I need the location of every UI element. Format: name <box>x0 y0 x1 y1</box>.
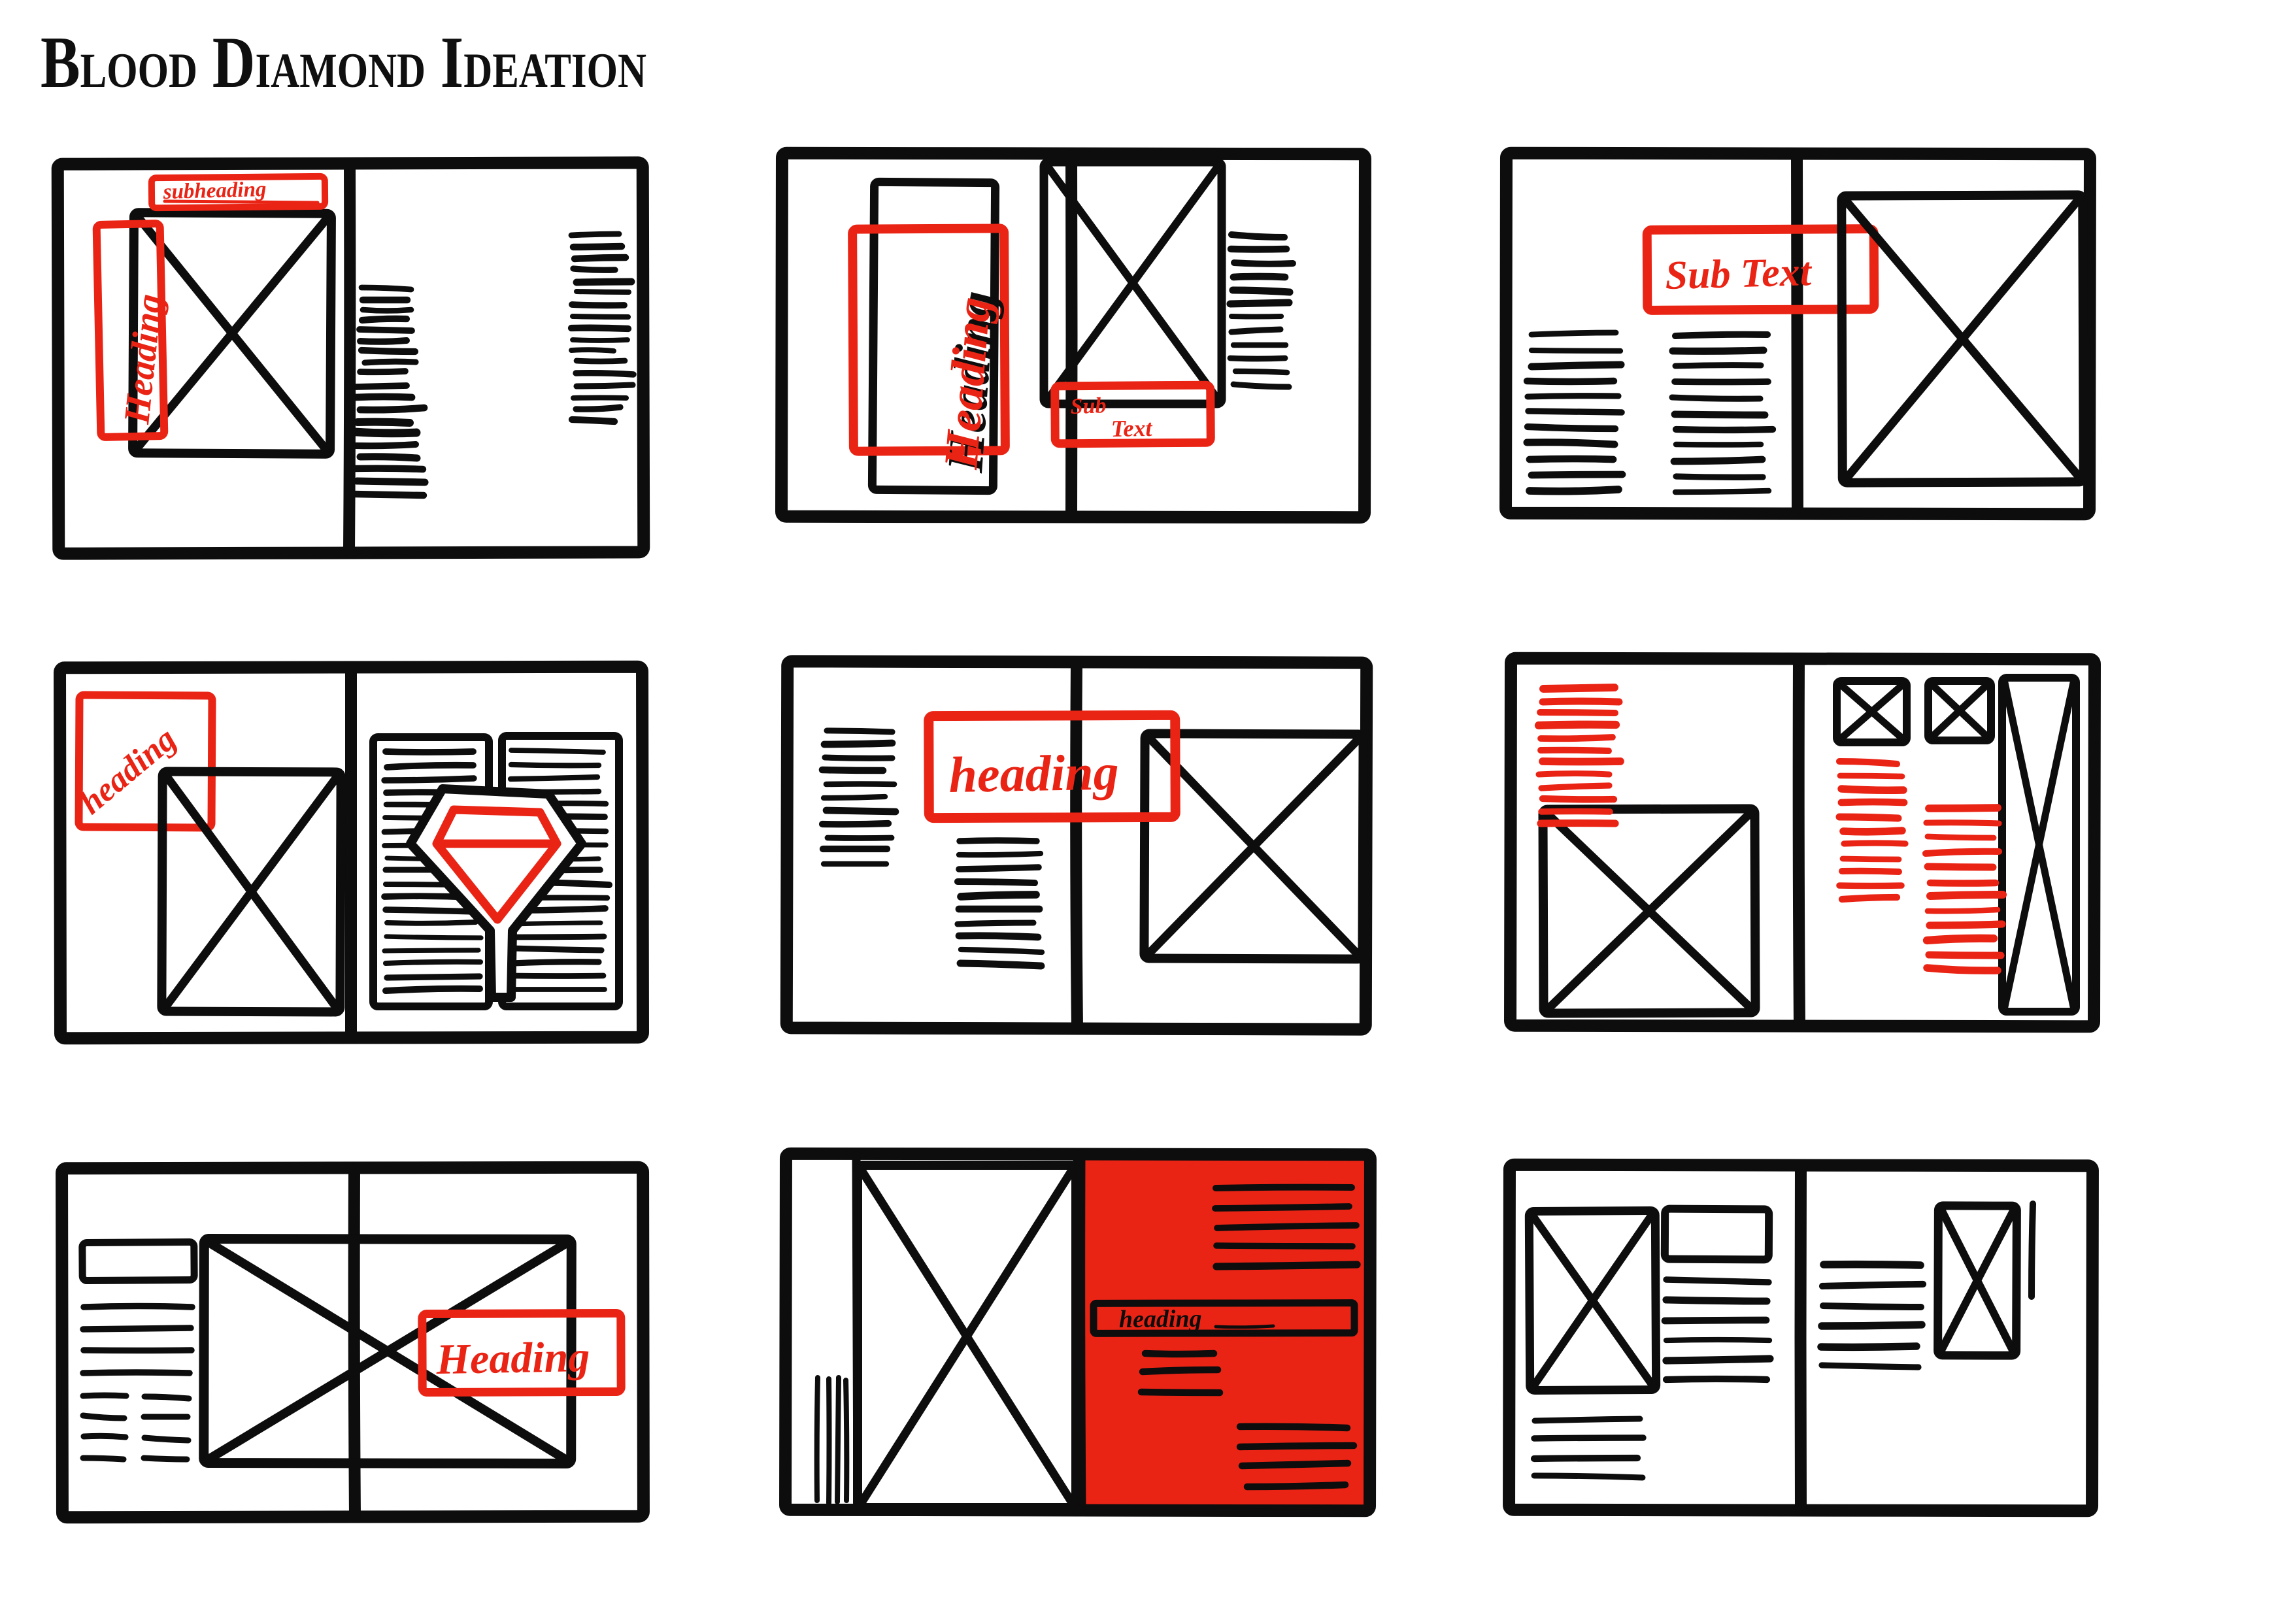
svg-text:heading: heading <box>1119 1305 1202 1333</box>
svg-text:Text: Text <box>1111 415 1152 442</box>
svg-text:Sub Text: Sub Text <box>1665 250 1813 298</box>
svg-text:heading: heading <box>948 743 1120 803</box>
svg-text:Heading: Heading <box>435 1333 590 1384</box>
svg-text:Sub: Sub <box>1070 393 1107 419</box>
